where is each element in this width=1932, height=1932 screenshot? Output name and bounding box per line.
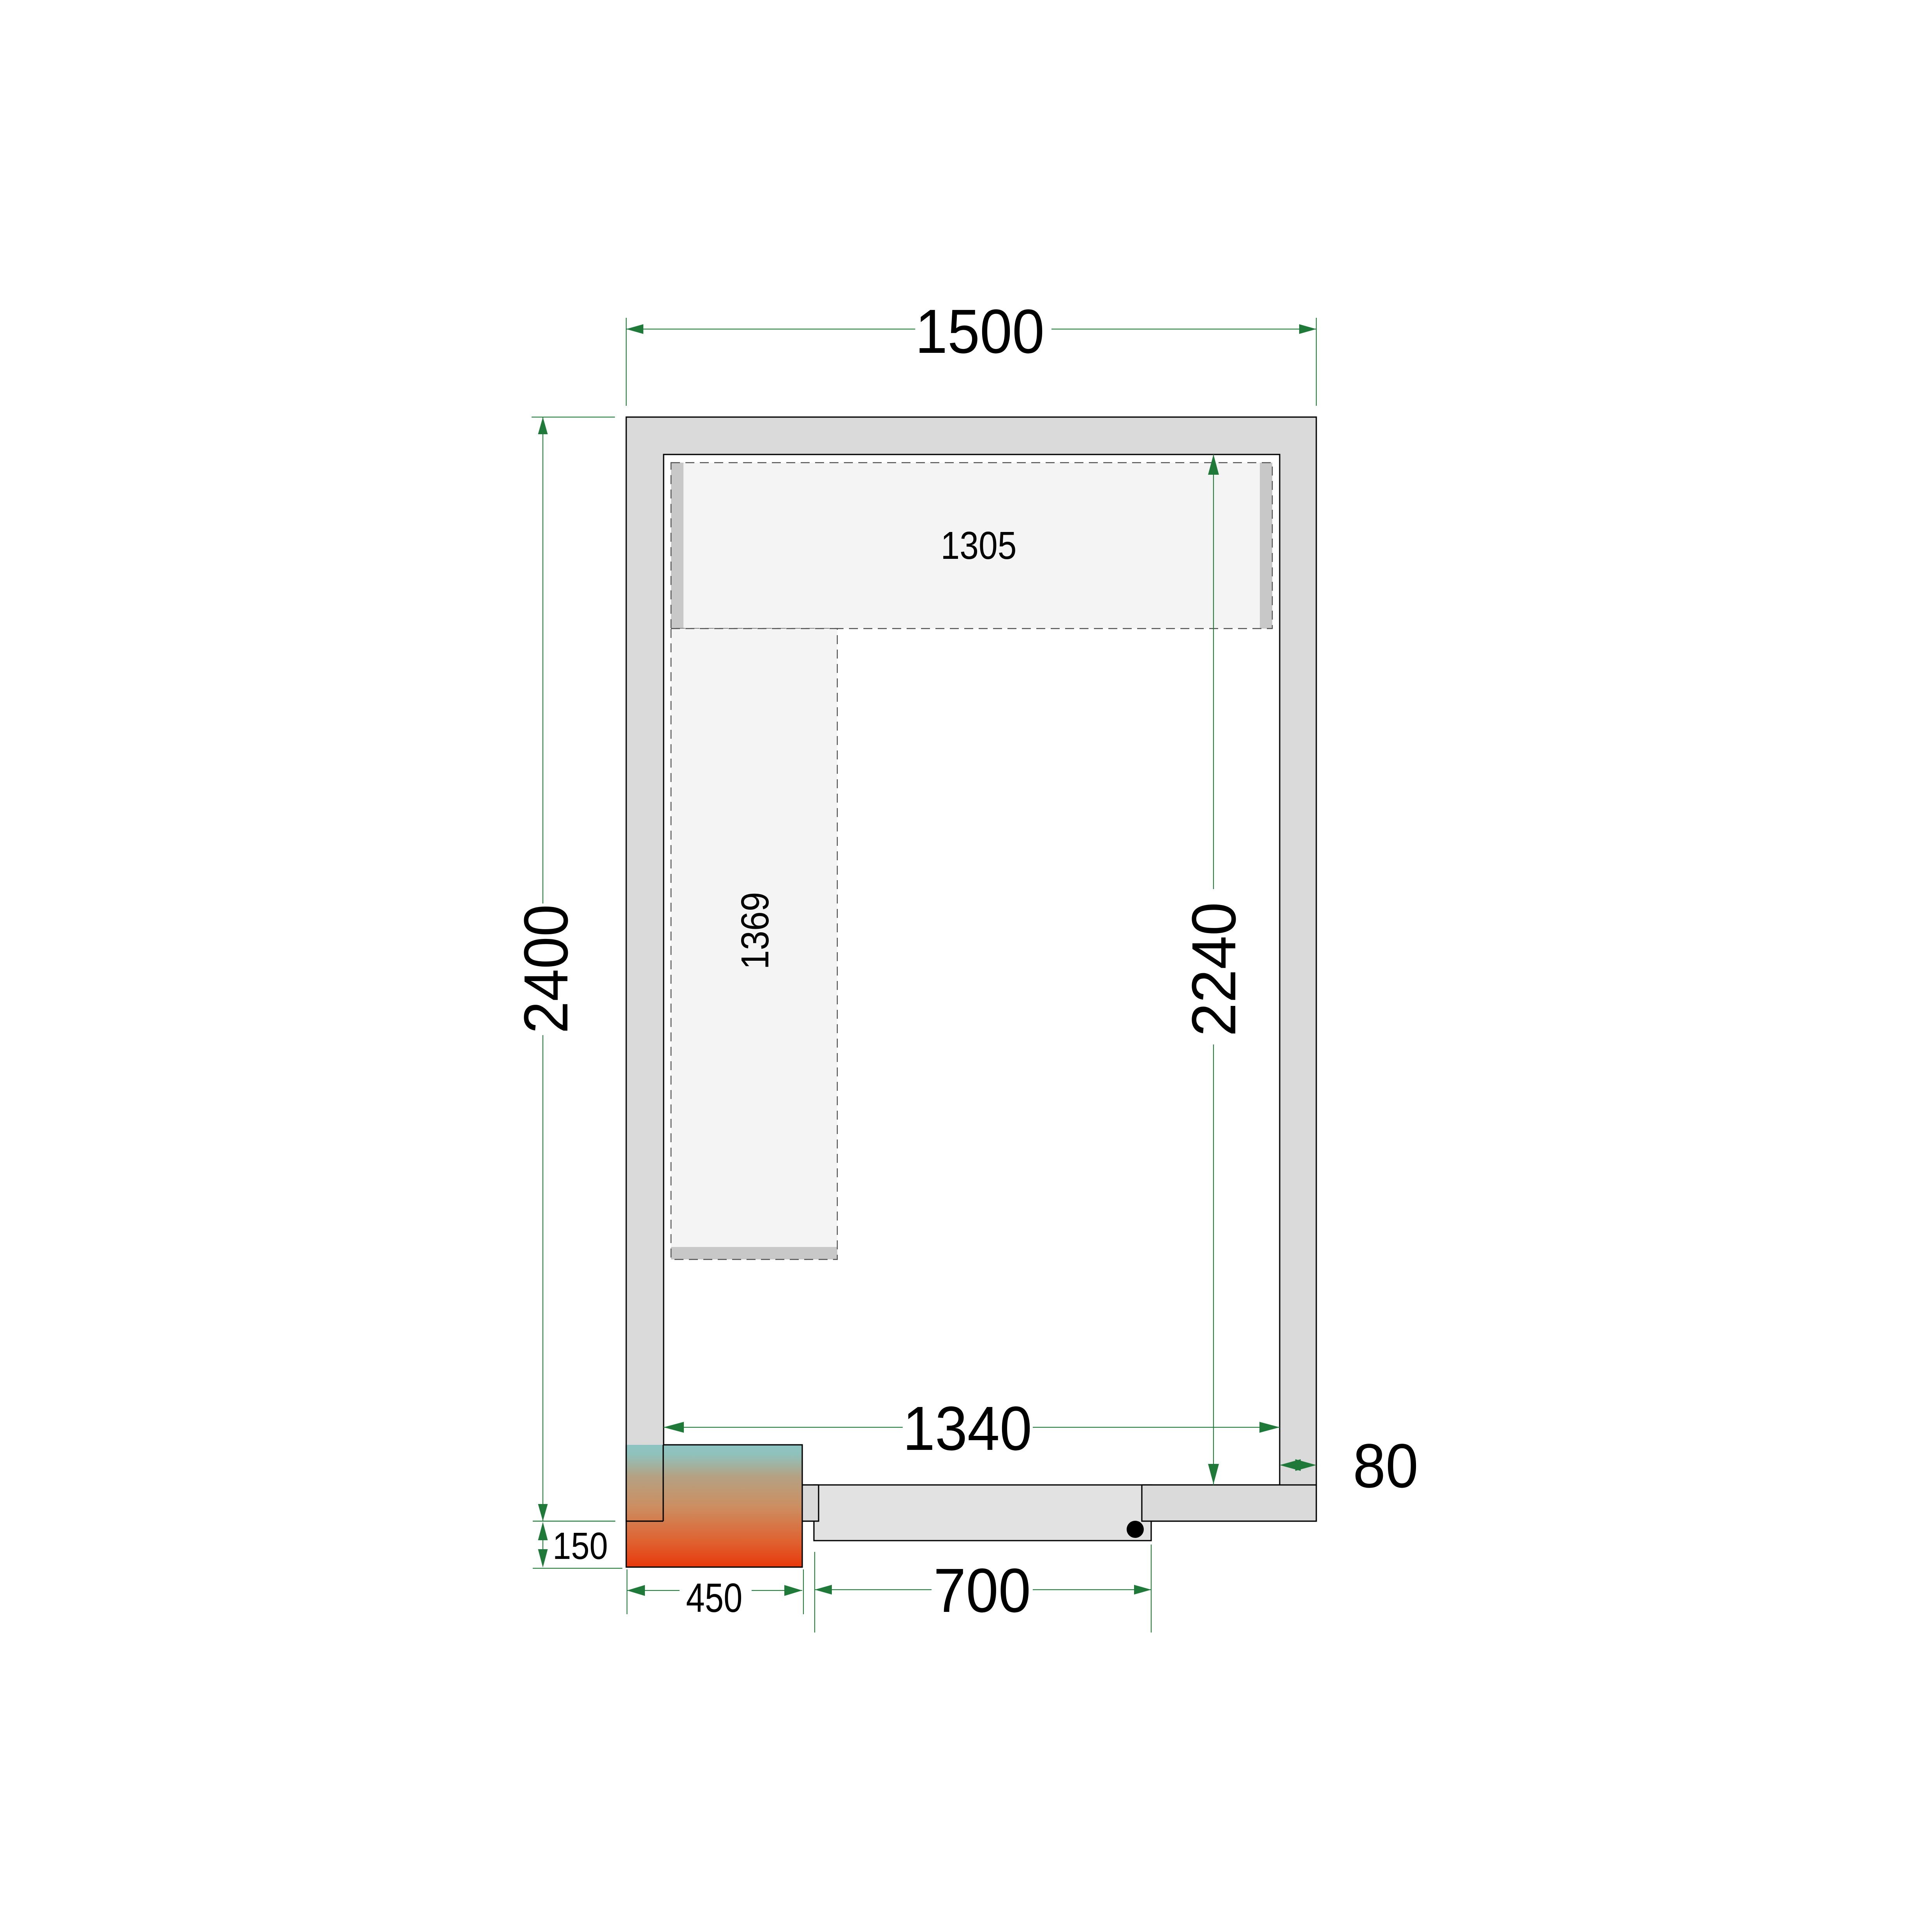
svg-text:1305: 1305	[941, 524, 1017, 567]
svg-text:450: 450	[686, 1575, 743, 1621]
svg-text:2240: 2240	[1179, 902, 1249, 1037]
svg-text:1340: 1340	[903, 1393, 1032, 1463]
svg-text:80: 80	[1353, 1431, 1418, 1501]
svg-text:700: 700	[933, 1555, 1031, 1625]
svg-text:1500: 1500	[915, 296, 1044, 366]
svg-text:150: 150	[553, 1525, 608, 1567]
svg-text:1369: 1369	[733, 892, 777, 970]
svg-text:2400: 2400	[511, 904, 581, 1034]
